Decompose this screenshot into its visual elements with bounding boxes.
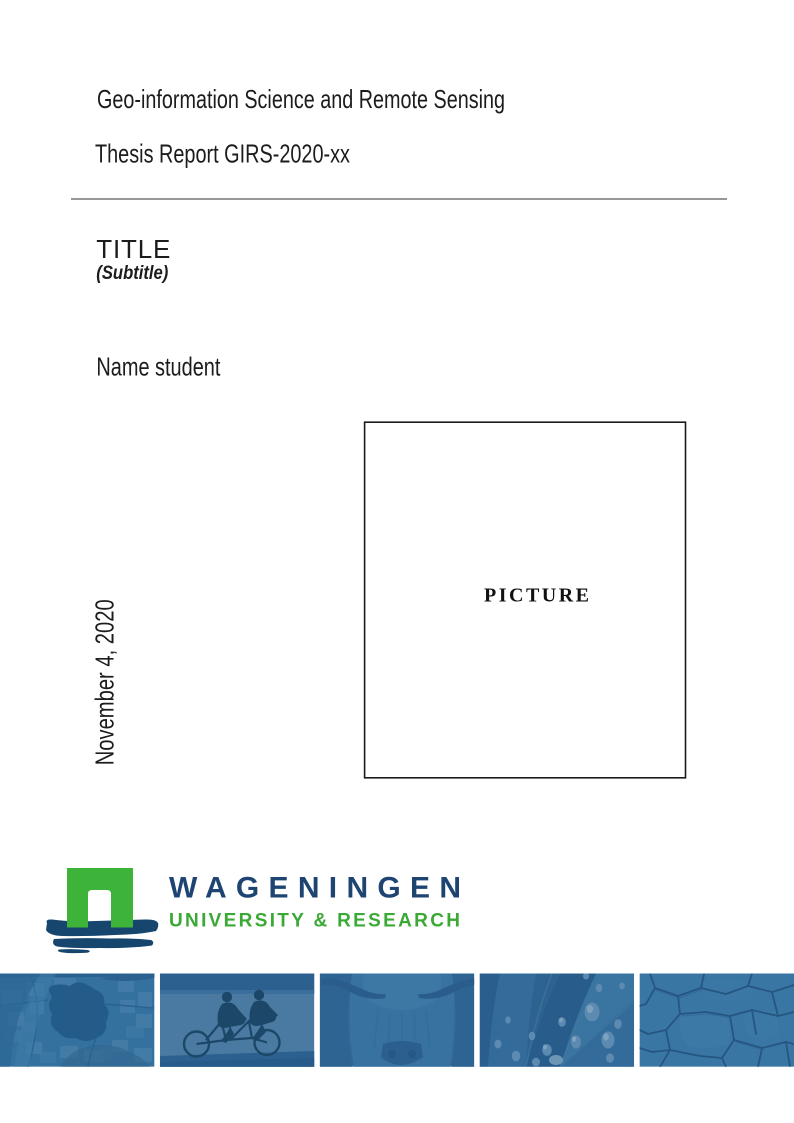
svg-text:WAGENINGEN: WAGENINGEN — [169, 872, 461, 905]
svg-text:TITLE: TITLE — [96, 234, 170, 264]
svg-text:Geo-information Science and Re: Geo-information Science and Remote Sensi… — [97, 84, 505, 114]
svg-text:November 4, 2020: November 4, 2020 — [90, 599, 120, 765]
svg-text:UNIVERSITY & RESEARCH: UNIVERSITY & RESEARCH — [169, 911, 460, 932]
svg-text:Thesis Report GIRS-2020-xx: Thesis Report GIRS-2020-xx — [95, 138, 350, 168]
svg-text:Name student: Name student — [96, 352, 221, 382]
svg-text:(Subtitle): (Subtitle) — [96, 263, 168, 284]
